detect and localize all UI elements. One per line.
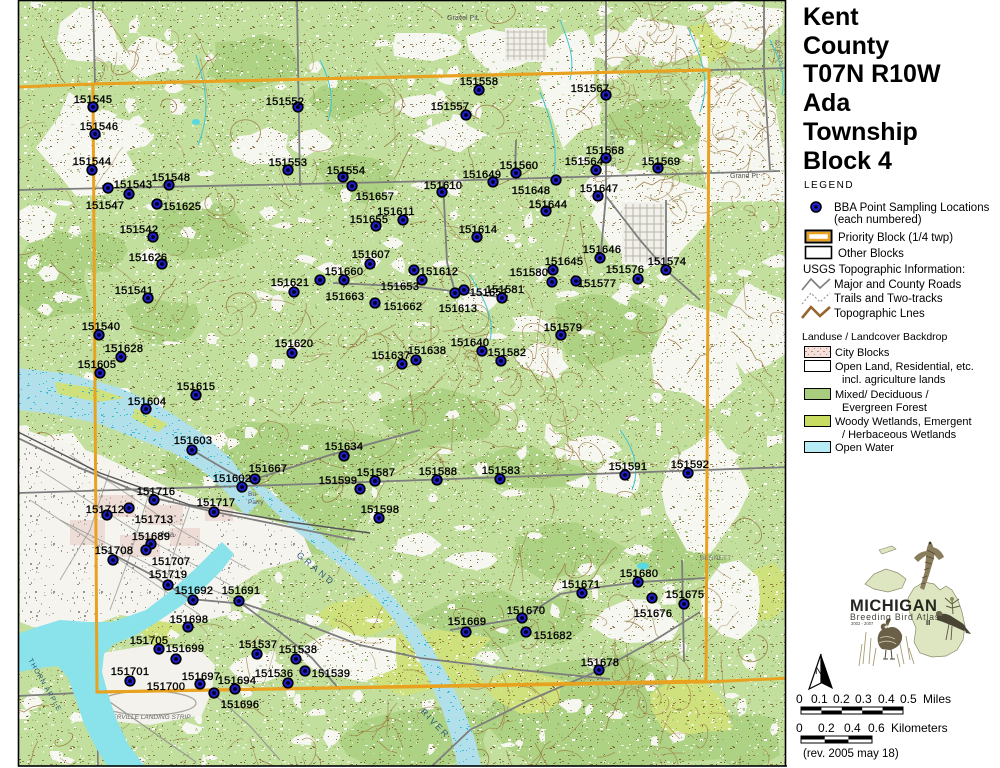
svg-text:151676: 151676 bbox=[634, 608, 673, 620]
svg-text:151708: 151708 bbox=[95, 545, 134, 557]
svg-text:151646: 151646 bbox=[583, 244, 622, 256]
svg-text:151576: 151576 bbox=[606, 264, 645, 276]
svg-text:incl. agriculture lands: incl. agriculture lands bbox=[842, 374, 946, 386]
svg-text:N: N bbox=[815, 666, 822, 677]
svg-text:Open Water: Open Water bbox=[835, 442, 894, 454]
svg-text:151560: 151560 bbox=[500, 160, 539, 172]
svg-text:151647: 151647 bbox=[580, 183, 619, 195]
svg-text:0: 0 bbox=[796, 721, 803, 735]
svg-text:151699: 151699 bbox=[166, 643, 205, 655]
svg-text:151634: 151634 bbox=[325, 441, 364, 453]
svg-text:151567: 151567 bbox=[571, 83, 610, 95]
svg-text:151604: 151604 bbox=[128, 396, 167, 408]
svg-text:151644: 151644 bbox=[529, 199, 568, 211]
svg-text:151625: 151625 bbox=[163, 201, 202, 213]
svg-text:151580: 151580 bbox=[510, 267, 549, 279]
svg-text:151553: 151553 bbox=[269, 157, 308, 169]
svg-text:II: II bbox=[926, 618, 930, 627]
svg-text:151591: 151591 bbox=[609, 461, 648, 473]
svg-text:151605: 151605 bbox=[78, 359, 117, 371]
svg-text:151558: 151558 bbox=[460, 76, 499, 88]
svg-text:151582: 151582 bbox=[488, 347, 527, 359]
svg-text:151620: 151620 bbox=[275, 338, 314, 350]
svg-text:151574: 151574 bbox=[648, 256, 687, 268]
svg-text:151581: 151581 bbox=[486, 284, 525, 296]
svg-text:0.4: 0.4 bbox=[844, 721, 861, 735]
svg-text:151615: 151615 bbox=[177, 381, 216, 393]
svg-text:151682: 151682 bbox=[534, 630, 573, 642]
svg-text:151545: 151545 bbox=[74, 94, 113, 106]
svg-text:151548: 151548 bbox=[152, 172, 191, 184]
svg-text:151587: 151587 bbox=[357, 467, 396, 479]
svg-text:151713: 151713 bbox=[135, 514, 174, 526]
svg-text:151546: 151546 bbox=[80, 121, 119, 133]
svg-text:151719: 151719 bbox=[149, 569, 188, 581]
svg-text:0.1: 0.1 bbox=[811, 692, 828, 706]
svg-text:Kilometers: Kilometers bbox=[891, 721, 948, 735]
svg-text:0.3: 0.3 bbox=[855, 692, 872, 706]
svg-text:0.6: 0.6 bbox=[868, 721, 885, 735]
svg-text:151628: 151628 bbox=[105, 343, 144, 355]
svg-text:Miles: Miles bbox=[923, 692, 951, 706]
svg-text:151680: 151680 bbox=[620, 568, 659, 580]
svg-text:151698: 151698 bbox=[170, 614, 209, 626]
svg-text:City Blocks: City Blocks bbox=[835, 347, 890, 359]
svg-text:151541: 151541 bbox=[115, 285, 154, 297]
svg-text:151542: 151542 bbox=[120, 224, 159, 236]
svg-text:151536: 151536 bbox=[255, 668, 294, 680]
svg-text:151678: 151678 bbox=[581, 657, 620, 669]
svg-text:151700: 151700 bbox=[147, 681, 186, 693]
svg-text:BENNETT: BENNETT bbox=[700, 556, 732, 562]
svg-text:151696: 151696 bbox=[221, 699, 260, 711]
svg-text:151671: 151671 bbox=[562, 579, 601, 591]
svg-text:151669: 151669 bbox=[448, 616, 487, 628]
svg-text:151691: 151691 bbox=[222, 585, 261, 597]
svg-text:151547: 151547 bbox=[86, 200, 125, 212]
svg-text:0.5: 0.5 bbox=[900, 692, 917, 706]
svg-text:151577: 151577 bbox=[578, 278, 617, 290]
svg-text:Major and County Roads: Major and County Roads bbox=[834, 279, 961, 291]
svg-text:151657: 151657 bbox=[356, 191, 395, 203]
svg-text:151707: 151707 bbox=[152, 556, 191, 568]
svg-text:0.2: 0.2 bbox=[818, 721, 835, 735]
svg-text:Topographic Lnes: Topographic Lnes bbox=[834, 308, 925, 320]
svg-text:151663: 151663 bbox=[326, 291, 365, 303]
svg-text:151670: 151670 bbox=[507, 605, 546, 617]
svg-text:151579: 151579 bbox=[544, 322, 583, 334]
svg-text:(each numbered): (each numbered) bbox=[834, 214, 922, 226]
svg-text:151662: 151662 bbox=[384, 301, 423, 313]
svg-text:2002 - 2007: 2002 - 2007 bbox=[851, 621, 874, 626]
svg-text:Grand Pt: Grand Pt bbox=[730, 173, 758, 180]
svg-text:Gravel Pit: Gravel Pit bbox=[447, 15, 478, 22]
svg-text:0: 0 bbox=[796, 692, 803, 706]
svg-text:151701: 151701 bbox=[111, 666, 150, 678]
svg-text:151552: 151552 bbox=[266, 96, 305, 108]
svg-text:Mixed/ Deciduous /: Mixed/ Deciduous / bbox=[835, 389, 929, 401]
svg-text:151598: 151598 bbox=[361, 504, 400, 516]
svg-text:151537: 151537 bbox=[239, 639, 278, 651]
svg-text:151648: 151648 bbox=[512, 185, 551, 197]
svg-text:151712: 151712 bbox=[86, 504, 125, 516]
svg-text:151564: 151564 bbox=[565, 156, 604, 168]
svg-text:151538: 151538 bbox=[279, 644, 318, 656]
svg-text:151660: 151660 bbox=[325, 266, 364, 278]
svg-text:151592: 151592 bbox=[671, 459, 710, 471]
svg-text:151667: 151667 bbox=[249, 463, 288, 475]
svg-text:151613: 151613 bbox=[439, 303, 478, 315]
svg-text:151645: 151645 bbox=[545, 256, 584, 268]
svg-text:151569: 151569 bbox=[642, 156, 681, 168]
svg-text:151655: 151655 bbox=[350, 214, 389, 226]
svg-text:151607: 151607 bbox=[352, 249, 391, 261]
svg-text:Parry: Parry bbox=[248, 499, 264, 506]
svg-text:151583: 151583 bbox=[482, 465, 521, 477]
svg-text:151653: 151653 bbox=[381, 281, 420, 293]
svg-text:Trails and Two-tracks: Trails and Two-tracks bbox=[834, 293, 943, 305]
svg-text:151540: 151540 bbox=[82, 321, 121, 333]
svg-text:151610: 151610 bbox=[424, 180, 463, 192]
svg-text:BBA Point Sampling Locations: BBA Point Sampling Locations bbox=[834, 202, 990, 214]
svg-text:151599: 151599 bbox=[319, 475, 358, 487]
svg-text:151588: 151588 bbox=[419, 466, 458, 478]
svg-text:Open Land, Residential, etc.: Open Land, Residential, etc. bbox=[835, 361, 974, 373]
svg-text:/ Herbaceous Wetlands: / Herbaceous Wetlands bbox=[842, 429, 957, 441]
svg-text:151705: 151705 bbox=[130, 635, 169, 647]
svg-text:Woody Wetlands, Emergent: Woody Wetlands, Emergent bbox=[835, 416, 972, 428]
svg-text:Bu-: Bu- bbox=[248, 491, 258, 498]
svg-text:Evergreen Forest: Evergreen Forest bbox=[842, 402, 927, 414]
svg-text:151637: 151637 bbox=[372, 350, 411, 362]
svg-text:151689: 151689 bbox=[132, 531, 171, 543]
svg-text:151638: 151638 bbox=[408, 345, 447, 357]
svg-text:151602: 151602 bbox=[213, 473, 252, 485]
svg-text:151692: 151692 bbox=[175, 585, 214, 597]
svg-text:151614: 151614 bbox=[459, 224, 498, 236]
svg-text:0.2: 0.2 bbox=[833, 692, 850, 706]
svg-text:0.4: 0.4 bbox=[878, 692, 895, 706]
svg-text:151717: 151717 bbox=[197, 497, 236, 509]
svg-text:151557: 151557 bbox=[431, 101, 470, 113]
svg-text:Priority Block (1/4 twp): Priority Block (1/4 twp) bbox=[838, 232, 953, 244]
svg-text:151716: 151716 bbox=[137, 486, 176, 498]
svg-text:151621: 151621 bbox=[271, 277, 310, 289]
svg-text:151640: 151640 bbox=[451, 337, 490, 349]
svg-text:151697: 151697 bbox=[182, 671, 221, 683]
svg-text:151649: 151649 bbox=[463, 169, 502, 181]
svg-text:151603: 151603 bbox=[174, 435, 213, 447]
svg-text:151539: 151539 bbox=[312, 668, 351, 680]
svg-text:151554: 151554 bbox=[327, 165, 366, 177]
svg-text:151543: 151543 bbox=[114, 179, 153, 191]
svg-text:Other Blocks: Other Blocks bbox=[838, 248, 904, 260]
svg-text:151544: 151544 bbox=[73, 156, 112, 168]
svg-text:151694: 151694 bbox=[218, 675, 257, 687]
svg-text:151675: 151675 bbox=[666, 589, 705, 601]
svg-text:151626: 151626 bbox=[129, 252, 168, 264]
